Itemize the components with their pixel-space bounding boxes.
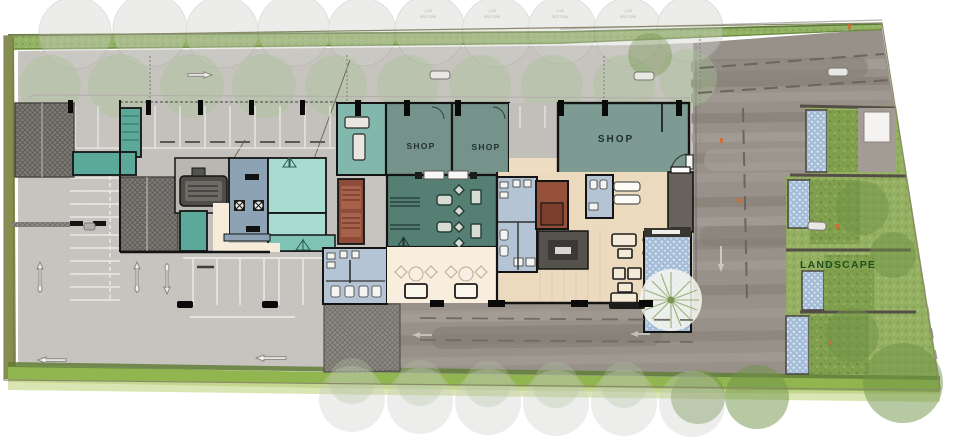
svg-text:SHOP: SHOP (407, 141, 436, 151)
svg-text:SECTION: SECTION (620, 15, 636, 19)
svg-text:1-05: 1-05 (556, 9, 563, 13)
svg-text:SECTION: SECTION (484, 15, 500, 19)
svg-text:SECTION: SECTION (552, 15, 568, 19)
svg-text:SECTION: SECTION (420, 15, 436, 19)
svg-text:1-05: 1-05 (424, 9, 431, 13)
svg-text:1-05: 1-05 (841, 28, 848, 32)
svg-text:1-05: 1-05 (488, 9, 495, 13)
svg-text:SHOP: SHOP (472, 142, 501, 152)
svg-text:SHOP: SHOP (598, 134, 634, 145)
svg-text:LANDSCAPE: LANDSCAPE (800, 259, 876, 271)
svg-text:1-05: 1-05 (624, 9, 631, 13)
